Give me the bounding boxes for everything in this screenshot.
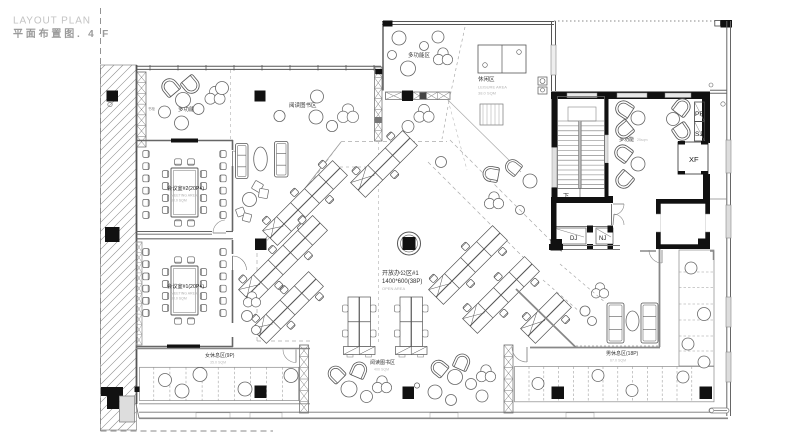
- svg-text:NJ: NJ: [599, 236, 606, 242]
- svg-text:休闲区: 休闲区: [478, 75, 495, 83]
- svg-text:会议室#1(20P+): 会议室#1(20P+): [167, 282, 204, 290]
- svg-text:1400*600(38P): 1400*600(38P): [382, 279, 422, 285]
- svg-text:男休息区(18P): 男休息区(18P): [606, 350, 639, 357]
- svg-text:书柜: 书柜: [148, 106, 155, 111]
- svg-text:400 SQM: 400 SQM: [374, 368, 389, 372]
- svg-text:多功能区: 多功能区: [408, 51, 431, 59]
- svg-text:PF: PF: [695, 111, 703, 118]
- svg-text:30.0 SQM: 30.0 SQM: [171, 199, 187, 203]
- svg-text:OPEN AREA: OPEN AREA: [382, 286, 405, 291]
- svg-text:35.0 SQM: 35.0 SQM: [210, 361, 226, 365]
- svg-text:MEETING AREA: MEETING AREA: [171, 194, 198, 198]
- svg-text:女休息区(9P): 女休息区(9P): [205, 352, 235, 359]
- svg-text:25sqm: 25sqm: [637, 138, 648, 142]
- svg-text:开放办公区#1: 开放办公区#1: [382, 269, 419, 277]
- svg-text:LAYOUT PLAN: LAYOUT PLAN: [13, 16, 91, 27]
- svg-text:67.0 SQM: 67.0 SQM: [610, 359, 626, 363]
- svg-text:LEISURE AREA: LEISURE AREA: [478, 85, 507, 90]
- svg-text:XF: XF: [689, 155, 699, 164]
- svg-text:平面布置图. 4 F: 平面布置图. 4 F: [13, 27, 111, 40]
- svg-text:30.0 SQM: 30.0 SQM: [171, 297, 187, 301]
- svg-text:MEETING AREA: MEETING AREA: [171, 292, 198, 296]
- svg-text:38.0 SQM: 38.0 SQM: [478, 91, 496, 96]
- svg-text:DJ: DJ: [570, 236, 577, 242]
- svg-text:阅读图书区: 阅读图书区: [289, 101, 317, 109]
- svg-text:会议室#2(20P+): 会议室#2(20P+): [167, 184, 204, 192]
- svg-text:阅读图书区: 阅读图书区: [370, 359, 395, 366]
- svg-text:SJ: SJ: [695, 131, 703, 138]
